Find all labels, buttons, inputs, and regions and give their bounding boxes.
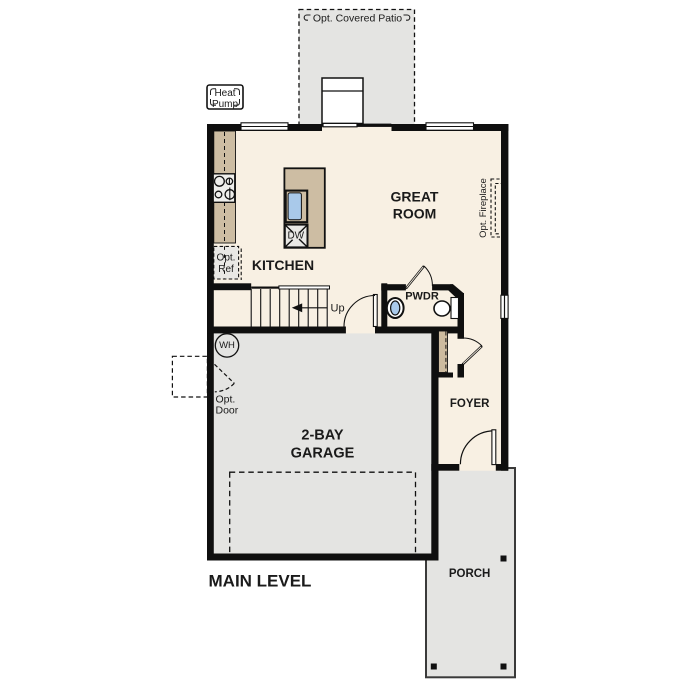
svg-text:GARAGE: GARAGE [291,446,355,462]
svg-text:PORCH: PORCH [449,568,491,580]
svg-text:PWDR: PWDR [405,290,439,302]
svg-text:Opt.: Opt. [217,253,236,264]
svg-text:KITCHEN: KITCHEN [252,257,314,273]
svg-text:DW: DW [287,230,304,241]
svg-text:Heat: Heat [214,88,235,99]
svg-text:Opt. Fireplace: Opt. Fireplace [478,178,489,238]
svg-text:Pump: Pump [212,99,239,110]
svg-text:GREAT: GREAT [391,189,439,205]
svg-text:Door: Door [216,405,239,417]
svg-text:MAIN LEVEL: MAIN LEVEL [209,571,312,590]
svg-text:ROOM: ROOM [393,206,437,222]
svg-text:Opt. Covered Patio: Opt. Covered Patio [313,13,402,25]
svg-text:Up: Up [331,303,345,315]
svg-text:FOYER: FOYER [450,398,490,410]
svg-text:Ref: Ref [218,264,234,275]
svg-text:WH: WH [219,340,235,351]
svg-text:2-BAY: 2-BAY [301,428,344,444]
